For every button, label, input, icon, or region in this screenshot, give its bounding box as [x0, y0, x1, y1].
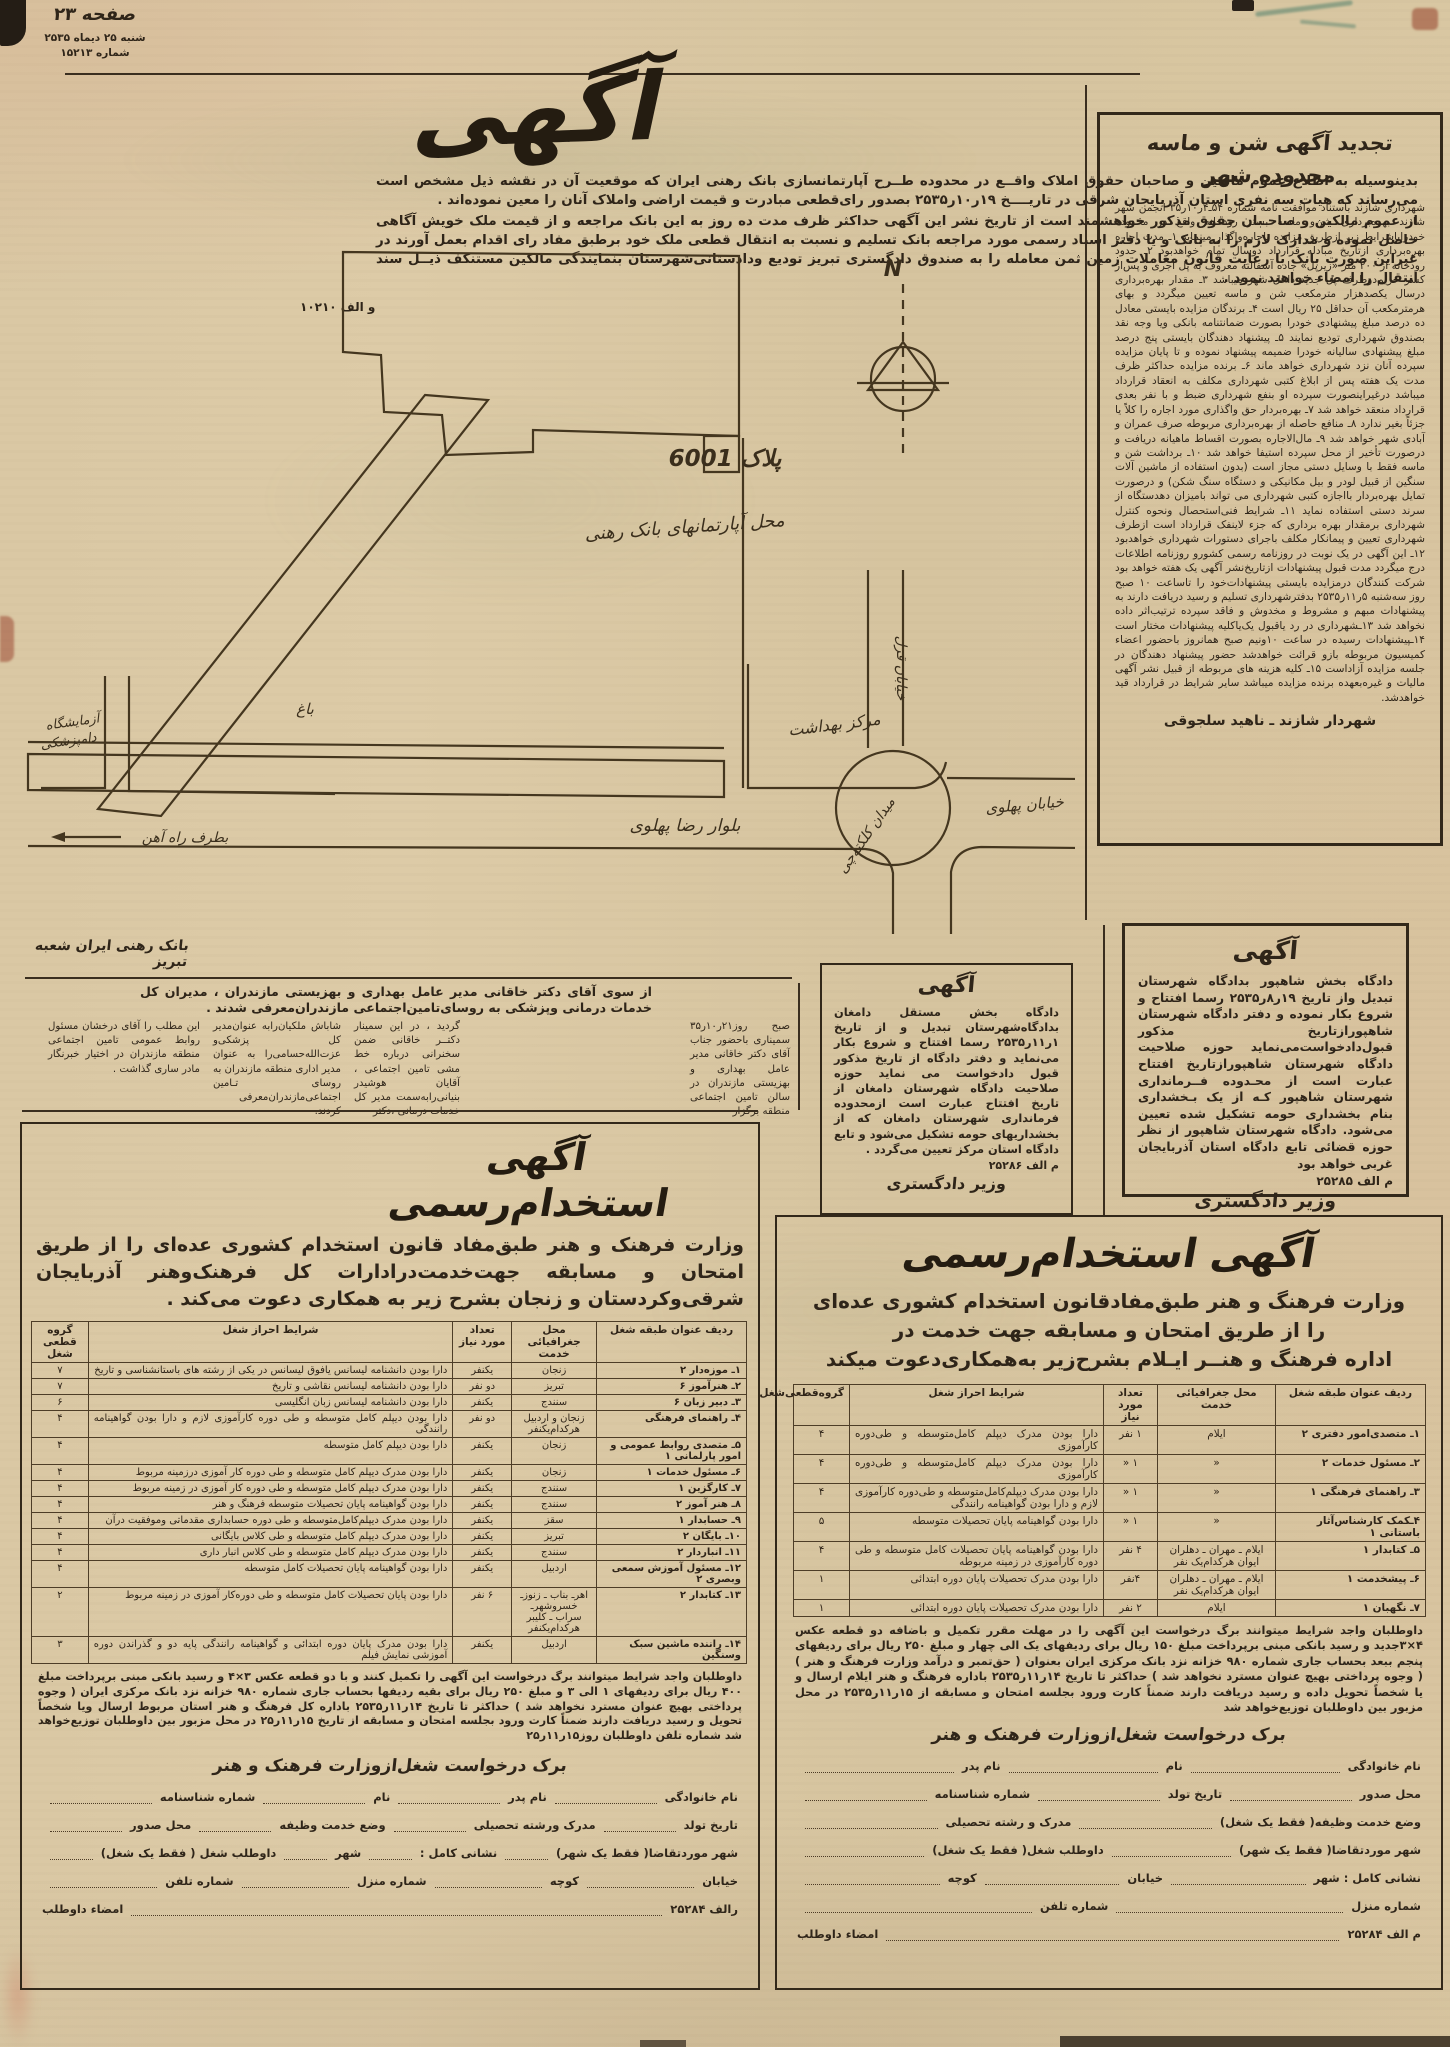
- seminar-column: شاباش ملکیان‌رابه عنوان‌مدیر کل پزشکی‌و …: [213, 1020, 341, 1119]
- group-cell: ۵: [794, 1513, 850, 1542]
- dotted-line: [1171, 1873, 1306, 1885]
- field-label: مدرک ورشته تحصیلی: [474, 1818, 596, 1832]
- ref-code: م الف ۲۵۲۸۶: [834, 1159, 1059, 1172]
- red-stamp-mark: [1412, 8, 1438, 30]
- count-cell: دو نفر: [453, 1411, 512, 1438]
- job-title-cell: ۷ـ نگهبان ۱: [1276, 1600, 1426, 1617]
- requirements-cell: دارا بودن دیپلم کامل متوسطه و طی دوره کا…: [88, 1411, 453, 1438]
- column-header: محل جغرافیائی خدمت: [512, 1322, 597, 1363]
- count-cell: ۱ «: [1104, 1513, 1158, 1542]
- map-label-garden: باغ: [296, 700, 314, 718]
- table-row: ۱۴ـ راننده ماشین سبک وسنگیناردبیلیکنفردا…: [32, 1637, 747, 1664]
- corner-ink-blob: [0, 0, 26, 46]
- map-label-lab-1: آزمایشگاه: [44, 709, 104, 734]
- field-label: شهر موردتقاضا( فقط یک شهر): [556, 1846, 738, 1860]
- count-cell: یکنفر: [453, 1545, 512, 1561]
- table-row: ۱ـ موزه‌دار ۲زنجانیکنفردارا بودن دانشنام…: [32, 1363, 747, 1379]
- table-row: ۴ـ راهنمای فرهنگیزنجان و اردبیل هرکدام‌ی…: [32, 1411, 747, 1438]
- dotted-line: [505, 1848, 548, 1860]
- job-title-cell: ۱۱ـ انباردار ۲: [597, 1545, 747, 1561]
- form-row: نام خانوادگی نام پدر نام شماره شناسنامه: [42, 1790, 738, 1804]
- table-row: ۷ـ کارگزین ۱سنندجیکنفردارا بودن مدرک دیپ…: [32, 1481, 747, 1497]
- requirements-cell: دارا بودن دانشنامه لیسانس نقاشی و تاریخ: [88, 1379, 453, 1395]
- dotted-line: [805, 1873, 940, 1885]
- red-edge-mark: [0, 616, 14, 662]
- field-label: خیابان: [1127, 1871, 1163, 1885]
- job-title-cell: ۱۰ـ بایگان ۲: [597, 1529, 747, 1545]
- group-cell: ۱: [794, 1571, 850, 1600]
- employment-intro: وزارت فرهنک و هنر طبق‌مفاد قانون استخدام…: [36, 1232, 744, 1313]
- table-row: ۱۳ـ کتابدار ۲اهرـ بناب ـ زنوزـ خسروشهرـ …: [32, 1588, 747, 1637]
- compass-icon: N: [857, 257, 949, 456]
- map-label-qezel-street: خیابان قزل: [893, 636, 909, 701]
- location-cell: سنندج: [512, 1545, 597, 1561]
- notice-title: محدوده شهر: [1114, 163, 1426, 187]
- field-label: نام: [373, 1790, 390, 1804]
- count-cell: یکنفر: [453, 1637, 512, 1664]
- field-label: خیابان: [702, 1874, 738, 1888]
- requirements-cell: دارا بودن گواهینامه پایان تحصیلات متوسطه…: [88, 1497, 453, 1513]
- requirements-cell: دارا بودن مدرک دیپلم کامل متوسطه و طی کل…: [88, 1529, 453, 1545]
- form-row: نام خانوادگی نام نام پدر: [797, 1759, 1421, 1773]
- job-title-cell: ۱۲ـ مسئول آموزش سمعی وبصری ۲: [597, 1561, 747, 1588]
- table-row: ۱۰ـ بایگان ۲تبریزیکنفردارا بودن مدرک دیپ…: [32, 1529, 747, 1545]
- bank-signature: بانک رهنی ایران شعبه تبریز: [0, 938, 190, 970]
- requirements-cell: دارا بودن مدرک دیپلم کامل متوسطه و طی کل…: [88, 1545, 453, 1561]
- field-label: نام خانوادگی: [665, 1790, 738, 1804]
- road-edge-line: [28, 742, 724, 748]
- dotted-line: [369, 1848, 412, 1860]
- signature: وزیر دادگستری: [1137, 1190, 1394, 1212]
- employment-header: آگهی استخدام‌رسمی: [773, 1229, 1446, 1279]
- form-row: وضع خدمت وظیفه( فقط یک شغل) مدرک و رشته …: [797, 1815, 1421, 1829]
- dotted-line: [435, 1876, 542, 1888]
- location-cell: تبریز: [512, 1529, 597, 1545]
- group-cell: ۴: [32, 1481, 89, 1497]
- location-cell: زنجان و اردبیل هرکدام‌یکنفر: [512, 1411, 597, 1438]
- employment-box-left: آگهی استخدام‌رسمی وزارت فرهنک و هنر طبق‌…: [20, 1122, 760, 1990]
- dotted-line: [1009, 1761, 1158, 1773]
- group-cell: ۴: [794, 1542, 850, 1571]
- field-label: شماره شناسنامه: [160, 1790, 256, 1804]
- job-title-cell: ۴ـکمک کارشناس‌آثار باستانی ۱: [1276, 1513, 1426, 1542]
- table-row: ۴ـکمک کارشناس‌آثار باستانی ۱«۱ «دارا بود…: [794, 1513, 1426, 1542]
- count-cell: یکنفر: [453, 1561, 512, 1588]
- handwriting-mark: [1255, 0, 1353, 17]
- job-title-cell: ۳ـ راهنمای فرهنگی ۱: [1276, 1484, 1426, 1513]
- requirements-cell: دارا بودن مدرک دیپلم‌کامل‌متوسطه و طی دو…: [88, 1513, 453, 1529]
- column-rule: [798, 983, 800, 1110]
- field-label: شماره منزل: [357, 1874, 427, 1888]
- boulevard-road-line: [28, 846, 893, 934]
- table-row: ۱۲ـ مسئول آموزش سمعی وبصری ۲اردبیلیکنفرد…: [32, 1561, 747, 1588]
- application-form: نام خانوادگی نام نام پدر محل صدور تاریخ …: [797, 1759, 1421, 1941]
- requirements-cell: دارا بودن گواهینامه پایان تحصیلات متوسطه: [850, 1513, 1104, 1542]
- field-label: نام خانوادگی: [1348, 1759, 1421, 1773]
- employment-header: آگهی استخدام‌رسمی: [360, 1134, 706, 1226]
- count-cell: ۴ نفر: [1104, 1542, 1158, 1571]
- location-cell: اردبیل: [512, 1637, 597, 1664]
- location-cell: اردبیل: [512, 1561, 597, 1588]
- group-cell: ۴: [32, 1561, 89, 1588]
- form-row: شماره منزل شماره تلفن: [797, 1899, 1421, 1913]
- note-paragraph: داوطلبان واجد شرایط میتوانند برگ درخواست…: [795, 1623, 1423, 1715]
- group-cell: ۷: [32, 1379, 89, 1395]
- count-cell: ۶ نفر: [453, 1588, 512, 1637]
- group-cell: ۴: [32, 1545, 89, 1561]
- requirements-cell: دارا بودن گواهینامه پایان تحصیلات کامل م…: [88, 1561, 453, 1588]
- dotted-line: [394, 1820, 466, 1832]
- form-row: شهر موردتقاضا( فقط یک شهر) داوطلب شغل( ف…: [797, 1843, 1421, 1857]
- notice-body: دادگاه بخش مستقل دامغان بدادگاه‌شهرستان …: [834, 1005, 1059, 1157]
- table-row: ۶ـ پیشخدمت ۱ایلام ـ مهران ـ دهلران ایوان…: [794, 1571, 1426, 1600]
- field-label: تاریخ تولد: [684, 1818, 738, 1832]
- group-cell: ۴: [32, 1529, 89, 1545]
- count-cell: یکنفر: [453, 1529, 512, 1545]
- employment-box-right: آگهی استخدام‌رسمی وزارت فرهنگ و هنر طبق‌…: [775, 1215, 1443, 1990]
- job-title-cell: ۱۴ـ راننده ماشین سبک وسنگین: [597, 1637, 747, 1664]
- map-label-railway: بطرف راه آهن: [142, 828, 229, 846]
- field-label: شماره منزل: [1351, 1899, 1421, 1913]
- column-header: تعداد مورد نیاز: [453, 1322, 512, 1363]
- column-header: ردیف عنوان طبقه شغل: [597, 1322, 747, 1363]
- job-title-cell: ۶ـ پیشخدمت ۱: [1276, 1571, 1426, 1600]
- dotted-line: [131, 1904, 662, 1916]
- group-cell: ۴: [794, 1484, 850, 1513]
- requirements-cell: دارا بودن مدرک تحصیلات پایان دوره ابتدائ…: [850, 1600, 1104, 1617]
- requirements-cell: دارا بودن دانشنامه لیسانس یافوق لیسانس د…: [88, 1363, 453, 1379]
- requirements-cell: دارا بودن مدرک دیپلم کامل متوسطه و طی دو…: [88, 1481, 453, 1497]
- table-header-row: ردیف عنوان طبقه شغل محل جغرافیائی خدمت ت…: [794, 1385, 1426, 1426]
- job-title-cell: ۵ـ متصدی روابط عمومی و امور پارلمانی ۱: [597, 1438, 747, 1465]
- field-label: کوچه: [948, 1871, 977, 1885]
- seminar-intro: از سوی آقای دکتر خاقانی مدیر عامل بهداری…: [140, 984, 652, 1016]
- group-cell: ۲: [32, 1588, 89, 1637]
- hatched-strip-west: [98, 395, 488, 816]
- dotted-line: [604, 1820, 676, 1832]
- table-row: ۹ـ حسابدار ۱سقزیکنفردارا بودن مدرک دیپلم…: [32, 1513, 747, 1529]
- dotted-line: [1079, 1817, 1212, 1829]
- form-row: شهر موردتقاضا( فقط یک شهر) نشانی کامل : …: [42, 1846, 738, 1860]
- dotted-line: [50, 1792, 152, 1804]
- dotted-line: [50, 1820, 122, 1832]
- dotted-line: [805, 1817, 938, 1829]
- count-cell: یکنفر: [453, 1465, 512, 1481]
- count-cell: یکنفر: [453, 1363, 512, 1379]
- court-notice-box-shahpour: آگهی دادگاه بخش شاهپور بدادگاه شهرستان ت…: [1122, 923, 1409, 1197]
- dotted-line: [805, 1901, 1032, 1913]
- count-cell: ۱ نفر: [1104, 1426, 1158, 1455]
- table-row: ۱ـ متصدی‌امور دفتری ۲ایلام۱ نفردارا بودن…: [794, 1426, 1426, 1455]
- table-row: ۳ـ راهنمای فرهنگی ۱«۱ «دارا بودن مدرک دی…: [794, 1484, 1426, 1513]
- job-title-cell: ۱ـ موزه‌دار ۲: [597, 1363, 747, 1379]
- requirements-cell: دارا بودن پایان تحصیلات کامل متوسطه و طی…: [88, 1588, 453, 1637]
- employment-table: ردیف عنوان طبقه شغل محل جغرافیائی خدمت ت…: [31, 1321, 747, 1664]
- field-label: نام: [1166, 1759, 1183, 1773]
- field-label: وضع خدمت وظیفه( فقط یک شغل): [1220, 1815, 1421, 1829]
- seminar-column: گردید ، در این سمینار دکتــر خاقانی ضمن …: [354, 1020, 460, 1119]
- field-label: شهر: [335, 1846, 361, 1860]
- column-header: شرایط احراز شغل: [850, 1385, 1104, 1426]
- dotted-line: [985, 1873, 1120, 1885]
- group-cell: ۴: [32, 1465, 89, 1481]
- table-row: ۲ـ هنرآموز ۶تبریزدو نفردارا بودن دانشنام…: [32, 1379, 747, 1395]
- count-cell: ۴نفر: [1104, 1571, 1158, 1600]
- location-cell: «: [1158, 1484, 1276, 1513]
- job-title-cell: ۵ـ کتابدار ۱: [1276, 1542, 1426, 1571]
- dotted-line: [587, 1876, 694, 1888]
- form-row: محل صدور تاریخ تولد شماره شناسنامه: [797, 1787, 1421, 1801]
- group-cell: ۴: [32, 1438, 89, 1465]
- location-cell: زنجان: [512, 1438, 597, 1465]
- field-label: شماره شناسنامه: [935, 1787, 1031, 1801]
- street-line: [947, 778, 1075, 779]
- location-cell: اهرـ بناب ـ زنوزـ خسروشهرـ سراب ـ کلیبر …: [512, 1588, 597, 1637]
- field-label: شهر موردتقاضا( فقط یک شهر): [1239, 1843, 1421, 1857]
- job-title-cell: ۷ـ کارگزین ۱: [597, 1481, 747, 1497]
- requirements-cell: دارا بودن مدرک پایان دوره ابتدائی و گواه…: [88, 1637, 453, 1664]
- column-header: تعداد مورد نیاز: [1104, 1385, 1158, 1426]
- table-row: ۲ـ مسئول خدمات ۲«۱ «دارا بودن مدرک دیپلم…: [794, 1455, 1426, 1484]
- group-cell: ۶: [32, 1395, 89, 1411]
- dotted-line: [805, 1761, 954, 1773]
- location-cell: سنندج: [512, 1395, 597, 1411]
- dotted-line: [1230, 1789, 1352, 1801]
- map-label-site: محل آپارتمانهای بانک رهنی: [584, 509, 786, 545]
- table-row: ۸ـ هنر آموز ۲سنندجیکنفردارا بودن گواهینا…: [32, 1497, 747, 1513]
- employment-intro: وزارت فرهنگ و هنر طبق‌مفادقانون استخدام …: [797, 1287, 1421, 1374]
- form-row: تاریخ تولد مدرک ورشته تحصیلی وضع خدمت وظ…: [42, 1818, 738, 1832]
- dotted-line: [1116, 1901, 1343, 1913]
- lab-street-corner: [129, 676, 335, 794]
- table-row: ۷ـ نگهبان ۱ایلام۲ نفردارا بودن مدرک تحصی…: [794, 1600, 1426, 1617]
- field-label: محل صدور: [1360, 1787, 1421, 1801]
- dotted-line: [398, 1792, 500, 1804]
- location-cell: سنندج: [512, 1497, 597, 1513]
- field-label: مدرک و رشته تحصیلی: [946, 1815, 1072, 1829]
- intro-line: وزارت فرهنگ و هنر طبق‌مفادقانون استخدام …: [797, 1287, 1421, 1316]
- edge-shadow-nub: [640, 2040, 686, 2047]
- location-cell: «: [1158, 1513, 1276, 1542]
- signature: شهردار شازند ـ ناهید سلجوقی: [1115, 713, 1425, 729]
- employment-table: ردیف عنوان طبقه شغل محل جغرافیائی خدمت ت…: [793, 1384, 1426, 1617]
- dotted-line: [50, 1848, 93, 1860]
- requirements-cell: دارا بودن مدرک دیپلم کامل‌متوسطه و طی‌دو…: [850, 1426, 1104, 1455]
- requirements-cell: دارا بودن دیپلم کامل متوسطه: [88, 1438, 453, 1465]
- group-cell: ۱: [794, 1600, 850, 1617]
- job-title-cell: ۸ـ هنر آموز ۲: [597, 1497, 747, 1513]
- field-label: داوطلب شغل ( فقط یک شغل): [101, 1846, 277, 1860]
- field-label: شماره تلفن: [165, 1874, 233, 1888]
- page-number: صفحه ۲۳: [29, 4, 162, 25]
- table-header-row: ردیف عنوان طبقه شغل محل جغرافیائی خدمت ت…: [32, 1322, 747, 1363]
- location-cell: زنجان: [512, 1465, 597, 1481]
- field-label: نام پدر: [508, 1790, 547, 1804]
- dotted-line: [1038, 1789, 1160, 1801]
- seminar-column: صبح روز۲۱ر۱۰ر۳۵ سمیناری باحضور جناب آقای…: [690, 1020, 790, 1119]
- requirements-cell: دارا بودن دانشنامه لیسانس زبان انگلیسی: [88, 1395, 453, 1411]
- job-title-cell: ۱ـ متصدی‌امور دفتری ۲: [1276, 1426, 1426, 1455]
- table-row: ۳ـ دبیر زبان ۶سنندجیکنفردارا بودن دانشنا…: [32, 1395, 747, 1411]
- location-cell: ایلام ـ مهران ـ دهلران ایوان هرکدام‌یک ن…: [1158, 1542, 1276, 1571]
- job-title-cell: ۹ـ حسابدار ۱: [597, 1513, 747, 1529]
- table-row: ۶ـ مسئول خدمات ۱زنجانیکنفردارا بودن مدرک…: [32, 1465, 747, 1481]
- intro-line: اداره فرهنگ و هنــر ایـلام بشرح‌زیر به‌ه…: [797, 1345, 1421, 1374]
- railway-arrow-icon: [51, 832, 121, 842]
- dotted-line: [1112, 1845, 1231, 1857]
- ref-code: م الف ۲۵۲۸۴: [1347, 1927, 1421, 1941]
- notice-title: آگهی: [1137, 936, 1395, 965]
- intro-line: را از طریق امتحان و مسابقه جهت خدمت در: [797, 1316, 1421, 1345]
- count-cell: یکنفر: [453, 1438, 512, 1465]
- issue-number: شماره ۱۵۲۱۳: [30, 47, 160, 59]
- count-cell: یکنفر: [453, 1481, 512, 1497]
- group-cell: ۴: [32, 1513, 89, 1529]
- field-label: نشانی کامل :: [420, 1846, 497, 1860]
- job-title-cell: ۳ـ دبیر زبان ۶: [597, 1395, 747, 1411]
- location-cell: تبریز: [512, 1379, 597, 1395]
- group-cell: ۴: [32, 1411, 89, 1438]
- notice-title: تجدید آگهی شن و ماسه: [1114, 131, 1426, 155]
- sand-notice-box: تجدید آگهی شن و ماسه محدوده شهر شهرداری …: [1097, 112, 1443, 846]
- count-cell: دو نفر: [453, 1379, 512, 1395]
- seminar-column: این مطلب را آقای درخشان مسئول روابط عموم…: [48, 1020, 200, 1077]
- field-label: شماره تلفن: [1040, 1899, 1108, 1913]
- dotted-line: [50, 1876, 157, 1888]
- dotted-line: [242, 1876, 349, 1888]
- column-header: گروه قطعی شغل: [32, 1322, 89, 1363]
- field-label: وضع خدمت وظیفه: [279, 1818, 385, 1832]
- ref-code: م الف ۲۵۲۸۵: [1316, 1174, 1393, 1188]
- signature-label: امضاء داوطلب: [42, 1902, 123, 1916]
- count-cell: ۱ «: [1104, 1484, 1158, 1513]
- count-cell: ۲ نفر: [1104, 1600, 1158, 1617]
- count-cell: یکنفر: [453, 1497, 512, 1513]
- column-header: گروه‌قطعی‌شغل: [794, 1385, 850, 1426]
- requirements-cell: دارا بودن مدرک دیپلم‌کامل‌متوسطه و طی‌دو…: [850, 1484, 1104, 1513]
- dotted-line: [555, 1792, 657, 1804]
- job-title-cell: ۲ـ مسئول خدمات ۲: [1276, 1455, 1426, 1484]
- notice-title: آگهی: [833, 973, 1060, 998]
- signature-label: امضاء داوطلب: [797, 1927, 878, 1941]
- field-label: تاریخ تولد: [1168, 1787, 1222, 1801]
- job-title-cell: ۲ـ هنرآموز ۶: [597, 1379, 747, 1395]
- job-title-cell: ۴ـ راهنمای فرهنگی: [597, 1411, 747, 1438]
- note-paragraph: داوطلبان واجد شرایط میتوانند برگ درخواست…: [38, 1670, 742, 1744]
- map-label-lab-2: دامپزشکی: [40, 730, 98, 753]
- ink-mark: [1232, 0, 1254, 11]
- table-row: ۵ـ متصدی روابط عمومی و امور پارلمانی ۱زن…: [32, 1438, 747, 1465]
- dotted-line: [1191, 1761, 1340, 1773]
- dotted-line: [805, 1789, 927, 1801]
- notice-body: شهرداری شازند باستناد موافقت نامه شماره …: [1115, 201, 1425, 705]
- compass-north-label: N: [884, 257, 902, 282]
- count-cell: یکنفر: [453, 1395, 512, 1411]
- field-label: محل صدور: [130, 1818, 191, 1832]
- requirements-cell: دارا بودن مدرک دیپلم کامل‌متوسطه و طی‌دو…: [850, 1455, 1104, 1484]
- table-row: ۵ـ کتابدار ۱ایلام ـ مهران ـ دهلران ایوان…: [794, 1542, 1426, 1571]
- job-title-cell: ۶ـ مسئول خدمات ۱: [597, 1465, 747, 1481]
- form-row: خیابان کوچه شماره منزل شماره تلفن: [42, 1874, 738, 1888]
- group-cell: ۴: [794, 1455, 850, 1484]
- count-cell: یکنفر: [453, 1513, 512, 1529]
- dotted-line: [199, 1820, 271, 1832]
- location-cell: سقز: [512, 1513, 597, 1529]
- dotted-line: [886, 1929, 1339, 1941]
- group-cell: ۳: [32, 1637, 89, 1664]
- ref-code: رالف ۲۵۲۸۴: [670, 1902, 738, 1916]
- map-label-plot: پلاک 6001: [669, 446, 782, 473]
- location-cell: ایلام: [1158, 1426, 1276, 1455]
- handwriting-mark: [1300, 20, 1356, 29]
- field-label: داوطلب شغل( فقط یک شغل): [932, 1843, 1104, 1857]
- notice-body: دادگاه بخش شاهپور بدادگاه شهرستان تبدیل …: [1138, 973, 1393, 1172]
- form-row: رالف ۲۵۲۸۴ امضاء داوطلب: [42, 1902, 738, 1916]
- newspaper-page: صفحه ۲۳ شنبه ۲۵ دیماه ۲۵۳۵ شماره ۱۵۲۱۳ آ…: [0, 0, 1450, 2047]
- site-map: N پلاک 6001 محل آپارتمانهای بانک رهنی مر…: [25, 248, 1075, 936]
- application-form: نام خانوادگی نام پدر نام شماره شناسنامه …: [42, 1790, 738, 1916]
- group-cell: ۴: [32, 1497, 89, 1513]
- field-label: کوچه: [550, 1874, 579, 1888]
- edge-shadow-band: [1060, 2036, 1450, 2047]
- requirements-cell: دارا بودن گواهینامه پایان تحصیلات کامل م…: [850, 1542, 1104, 1571]
- group-cell: ۴: [794, 1426, 850, 1455]
- court-notice-box-damghan: آگهی دادگاه بخش مستقل دامغان بدادگاه‌شهر…: [820, 963, 1073, 1215]
- map-label-pahlavi-street: خیابان پهلوی: [985, 793, 1065, 818]
- location-cell: زنجان: [512, 1363, 597, 1379]
- location-cell: ایلام ـ مهران ـ دهلران ایوان هرکدام‌یک ن…: [1158, 1571, 1276, 1600]
- count-cell: ۱ «: [1104, 1455, 1158, 1484]
- dotted-line: [805, 1845, 924, 1857]
- column-rule: [1103, 925, 1105, 1215]
- form-title: برک درخواست شغل‌ازوزارت فرهنک و هنر: [21, 1756, 759, 1776]
- boulevard-road-line-east: [951, 847, 1075, 934]
- location-cell: «: [1158, 1455, 1276, 1484]
- dotted-line: [284, 1848, 327, 1860]
- field-label: نام پدر: [962, 1759, 1001, 1773]
- location-cell: ایلام: [1158, 1600, 1276, 1617]
- signature: وزیر دادگستری: [833, 1174, 1060, 1193]
- group-cell: ۷: [32, 1363, 89, 1379]
- form-title: برک درخواست شغل‌ازوزارت فرهنک و هنر: [776, 1725, 1442, 1745]
- form-row: نشانی کامل : شهر خیابان کوچه: [797, 1871, 1421, 1885]
- column-header: محل جغرافیائی خدمت: [1158, 1385, 1276, 1426]
- section-rule: [25, 977, 792, 979]
- column-header: ردیف عنوان طبقه شغل: [1276, 1385, 1426, 1426]
- requirements-cell: دارا بودن مدرک تحصیلات پایان دوره ابتدائ…: [850, 1571, 1104, 1600]
- column-header: شرایط احراز شغل: [88, 1322, 453, 1363]
- map-label-boulevard: بلوار رضا پهلوی: [630, 816, 741, 836]
- page-header: صفحه ۲۳ شنبه ۲۵ دیماه ۲۵۳۵ شماره ۱۵۲۱۳: [30, 4, 160, 59]
- section-rule: [22, 1110, 758, 1112]
- job-title-cell: ۱۳ـ کتابدار ۲: [597, 1588, 747, 1637]
- column-rule: [1085, 85, 1087, 920]
- main-title: آگهی: [388, 57, 692, 167]
- table-row: ۱۱ـ انباردار ۲سنندجیکنفردارا بودن مدرک د…: [32, 1545, 747, 1561]
- issue-date: شنبه ۲۵ دیماه ۲۵۳۵: [30, 32, 160, 44]
- dotted-line: [263, 1792, 365, 1804]
- location-cell: سنندج: [512, 1481, 597, 1497]
- requirements-cell: دارا بودن مدرک دیپلم کامل متوسطه و طی دو…: [88, 1465, 453, 1481]
- field-label: نشانی کامل : شهر: [1314, 1871, 1421, 1885]
- form-row: م الف ۲۵۲۸۴ امضاء داوطلب: [797, 1927, 1421, 1941]
